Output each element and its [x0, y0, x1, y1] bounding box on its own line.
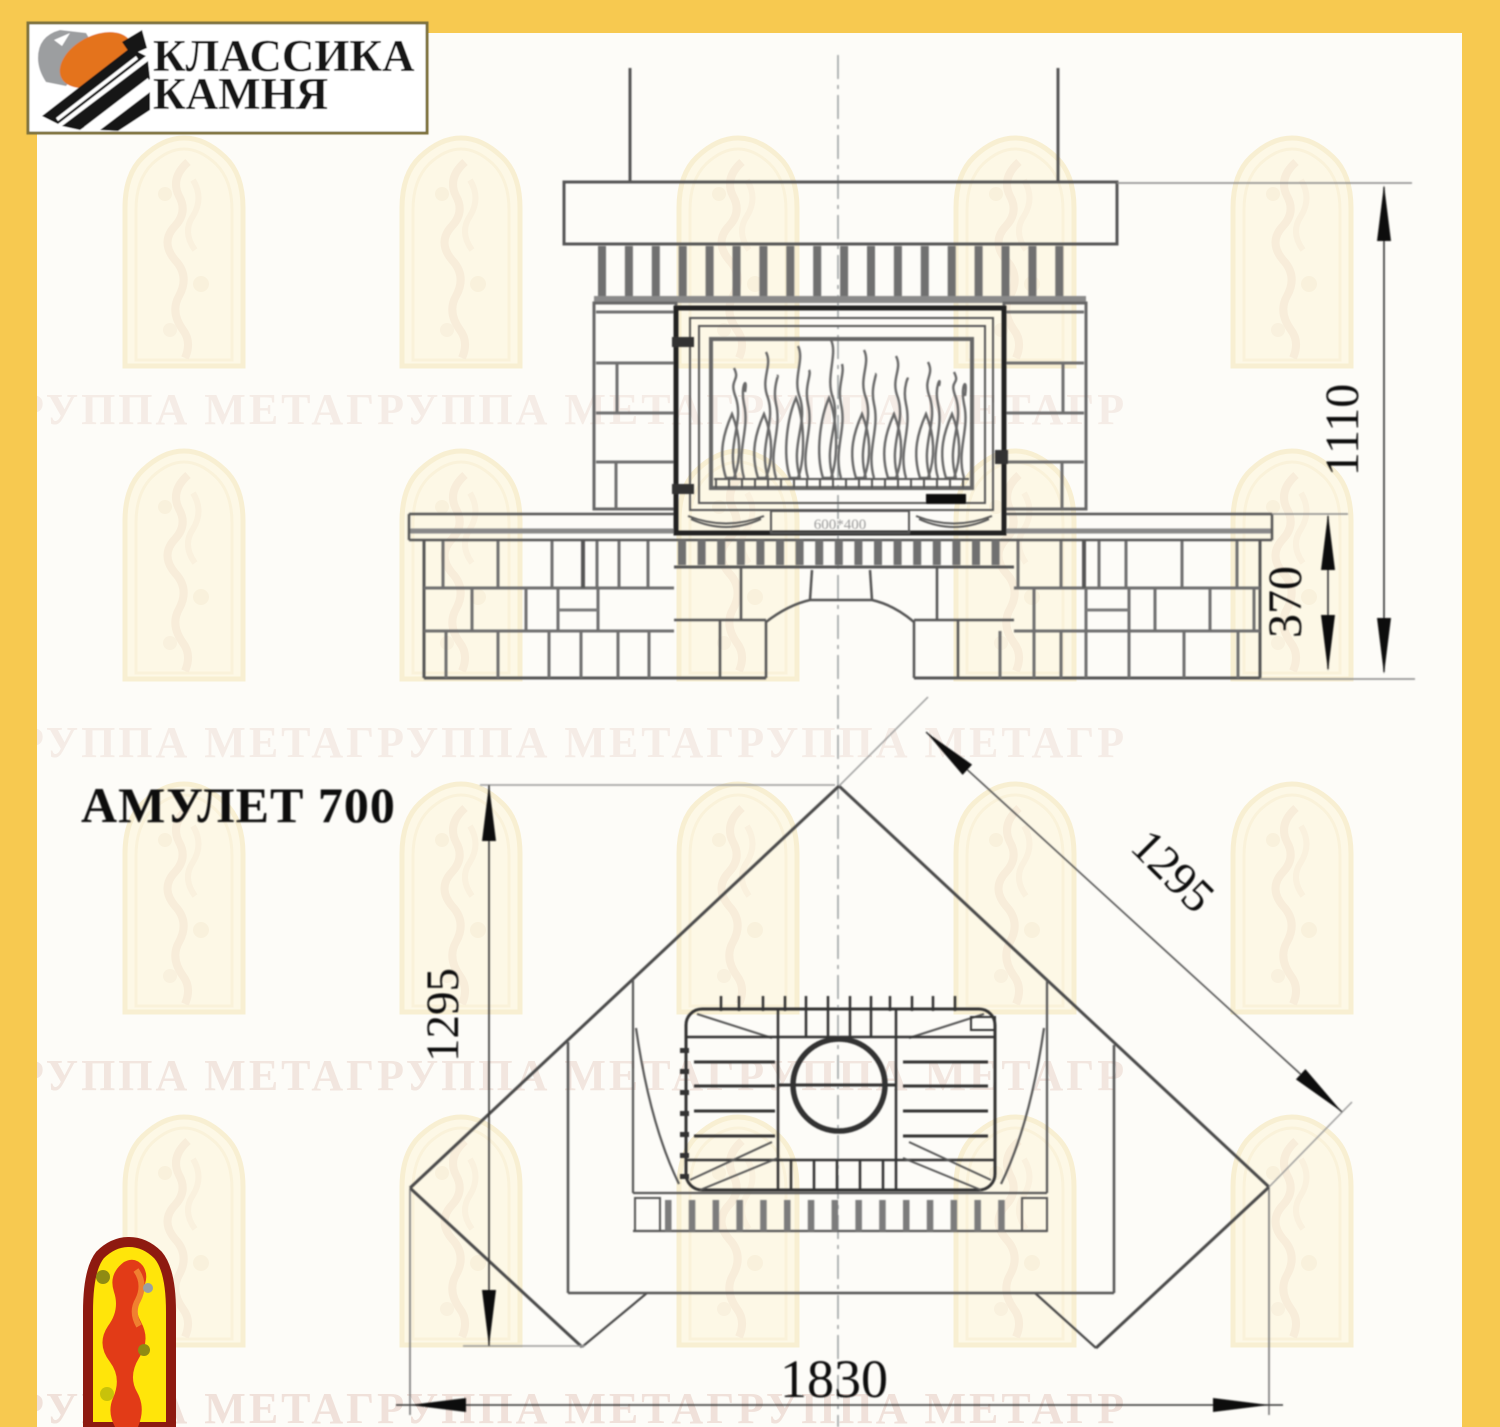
svg-text:600*400: 600*400 — [814, 517, 867, 533]
svg-text:1110: 1110 — [1316, 384, 1369, 476]
svg-text:КАМНЯ: КАМНЯ — [153, 69, 328, 119]
svg-text:АМУЛЕТ 700: АМУЛЕТ 700 — [81, 777, 396, 833]
svg-text:370: 370 — [1259, 566, 1312, 638]
svg-text:1295: 1295 — [417, 968, 469, 1062]
svg-text:ГРУППА МЕТАГРУППА МЕТАГРУППА М: ГРУППА МЕТАГРУППА МЕТАГРУППА МЕТАГР — [0, 1051, 1127, 1100]
svg-text:1830: 1830 — [780, 1349, 888, 1409]
